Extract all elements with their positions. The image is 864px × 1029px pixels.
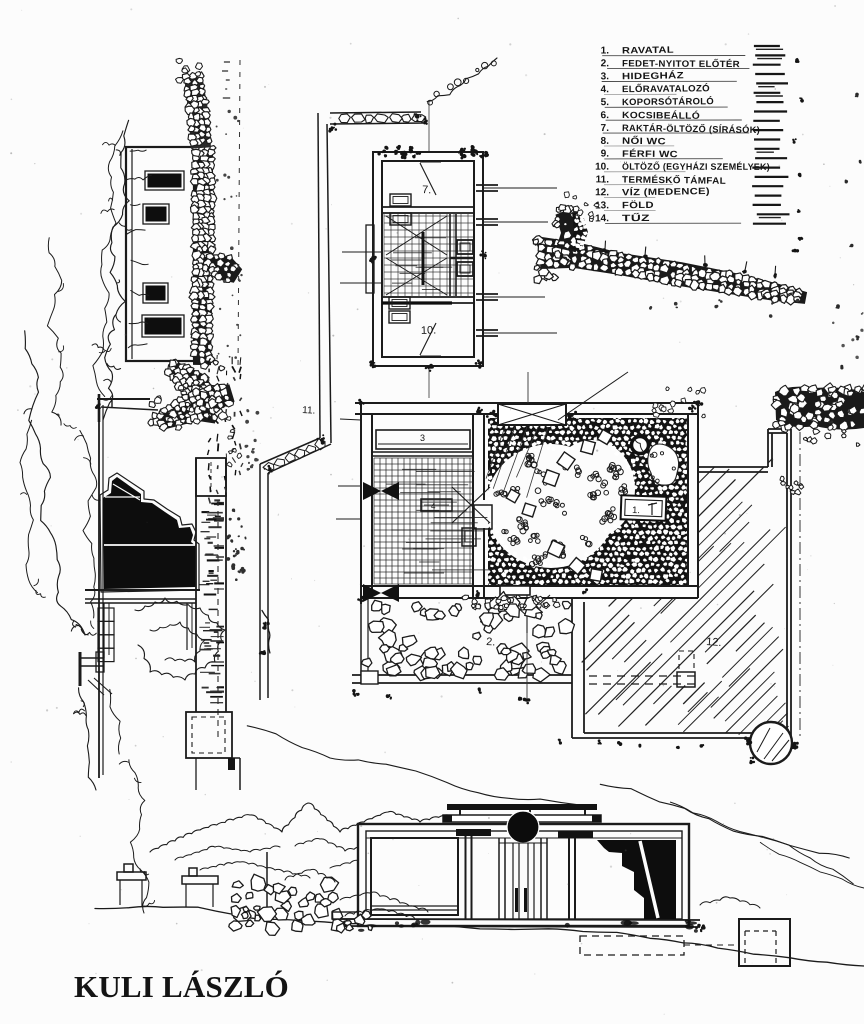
svg-text:4: 4 (431, 502, 436, 511)
svg-text:NŐI WC: NŐI WC (622, 135, 666, 147)
svg-text:2.: 2. (486, 636, 496, 648)
svg-text:11.: 11. (596, 174, 610, 185)
svg-text:10.: 10. (595, 162, 609, 173)
svg-text:VÍZ (MEDENCE): VÍZ (MEDENCE) (622, 185, 710, 197)
svg-text:KOPORSÓTÁROLÓ: KOPORSÓTÁROLÓ (622, 95, 714, 107)
svg-text:TŰZ: TŰZ (622, 212, 650, 223)
svg-text:12.: 12. (706, 636, 722, 649)
svg-text:6.: 6. (600, 110, 609, 121)
svg-text:KOCSIBEÁLLÓ: KOCSIBEÁLLÓ (622, 109, 700, 121)
svg-text:3.: 3. (601, 71, 610, 82)
svg-text:ELŐRAVATALOZÓ: ELŐRAVATALOZÓ (622, 82, 710, 94)
svg-text:14.: 14. (595, 213, 609, 224)
svg-text:5.: 5. (601, 97, 610, 108)
svg-text:TERMÉSKŐ TÁMFAL: TERMÉSKŐ TÁMFAL (622, 174, 726, 186)
svg-text:FEDET-NYITOT ELŐTÉR: FEDET-NYITOT ELŐTÉR (622, 57, 740, 69)
svg-text:7.: 7. (422, 184, 432, 196)
svg-text:3: 3 (420, 433, 425, 443)
svg-text:4.: 4. (600, 84, 609, 95)
svg-text:RAVATAL: RAVATAL (622, 45, 674, 56)
svg-text:10.: 10. (421, 324, 437, 337)
svg-text:KULI LÁSZLÓ: KULI LÁSZLÓ (74, 969, 289, 1004)
svg-text:9.: 9. (601, 149, 610, 160)
svg-text:HIDEGHÁZ: HIDEGHÁZ (622, 69, 684, 81)
svg-text:8.: 8. (600, 136, 609, 147)
svg-text:12.: 12. (595, 187, 609, 198)
svg-text:11.: 11. (302, 405, 316, 417)
svg-text:1.: 1. (632, 505, 640, 516)
svg-text:7.: 7. (601, 123, 610, 134)
svg-text:2.: 2. (601, 58, 610, 69)
svg-text:1.: 1. (601, 45, 610, 56)
svg-text:FÉRFI WC: FÉRFI WC (622, 148, 678, 159)
svg-text:FÖLD: FÖLD (622, 200, 654, 210)
svg-text:ÖLTÖZŐ (EGYHÁZI SZEMÉLYEK): ÖLTÖZŐ (EGYHÁZI SZEMÉLYEK) (622, 161, 770, 172)
